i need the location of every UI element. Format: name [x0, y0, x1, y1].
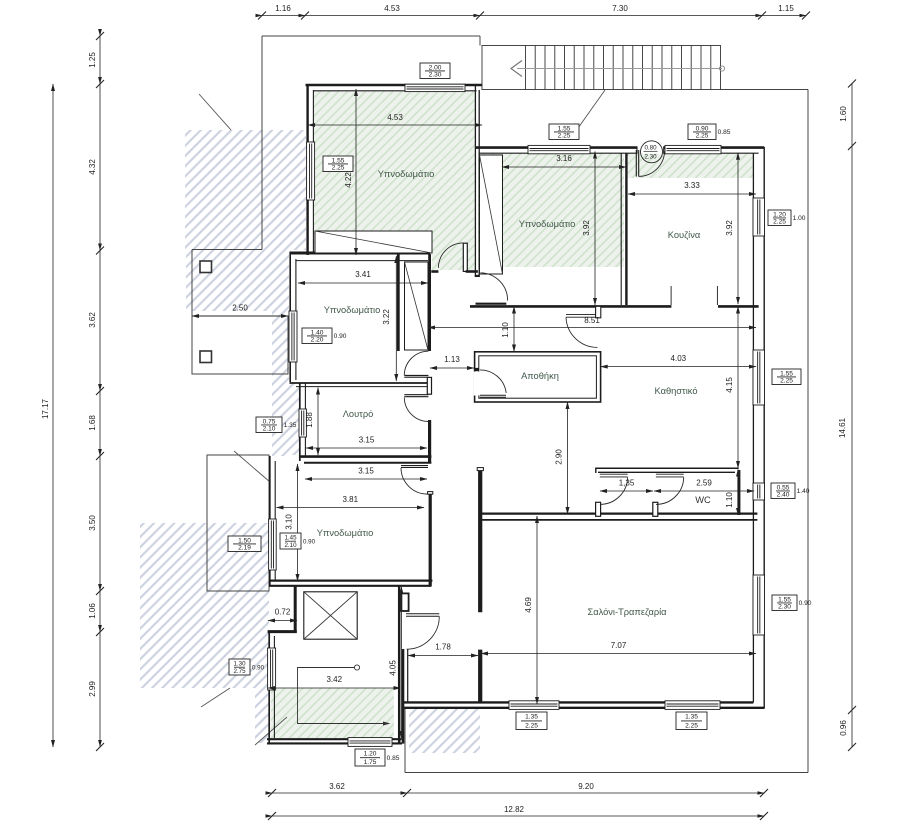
svg-text:2.20: 2.20 — [311, 337, 324, 344]
svg-text:3.81: 3.81 — [342, 495, 358, 504]
svg-text:0.80: 0.80 — [644, 145, 657, 152]
svg-text:1.35: 1.35 — [525, 714, 538, 721]
svg-text:0.96: 0.96 — [839, 720, 848, 736]
svg-text:1.78: 1.78 — [435, 643, 451, 652]
svg-text:2.25: 2.25 — [558, 133, 571, 140]
svg-text:Κουζίνα: Κουζίνα — [668, 230, 701, 240]
svg-text:4.32: 4.32 — [88, 159, 97, 175]
svg-text:2.25: 2.25 — [773, 219, 786, 226]
svg-text:4.05: 4.05 — [389, 660, 398, 676]
svg-text:4.69: 4.69 — [524, 597, 533, 613]
svg-text:1.13: 1.13 — [444, 355, 460, 364]
svg-text:2.90: 2.90 — [555, 449, 564, 465]
svg-text:9.20: 9.20 — [578, 782, 594, 791]
svg-text:4.15: 4.15 — [725, 377, 734, 393]
svg-text:17.17: 17.17 — [41, 398, 50, 419]
svg-text:Υπνοδωμάτιο: Υπνοδωμάτιο — [317, 528, 374, 538]
svg-text:0.90: 0.90 — [303, 538, 316, 545]
svg-text:3.62: 3.62 — [88, 312, 97, 328]
svg-text:Σαλόνι-Τραπεζαρία: Σαλόνι-Τραπεζαρία — [587, 607, 667, 617]
svg-text:Αποθήκη: Αποθήκη — [521, 371, 559, 381]
svg-text:3.42: 3.42 — [326, 675, 342, 684]
svg-text:7.07: 7.07 — [611, 641, 627, 650]
svg-text:3.33: 3.33 — [684, 181, 700, 190]
svg-text:1.60: 1.60 — [839, 106, 848, 122]
svg-text:14.61: 14.61 — [838, 417, 847, 438]
svg-text:1.75: 1.75 — [364, 759, 377, 766]
svg-text:1.88: 1.88 — [305, 412, 314, 428]
svg-text:1.15: 1.15 — [778, 4, 794, 13]
svg-text:1.40: 1.40 — [797, 488, 810, 495]
svg-text:7.30: 7.30 — [612, 4, 628, 13]
svg-text:0.72: 0.72 — [275, 608, 291, 617]
svg-text:1.06: 1.06 — [88, 603, 97, 619]
svg-text:2.30: 2.30 — [429, 72, 442, 79]
svg-text:0.90: 0.90 — [252, 664, 265, 671]
svg-text:2.25: 2.25 — [780, 378, 793, 385]
svg-text:12.82: 12.82 — [504, 805, 525, 814]
svg-text:3.22: 3.22 — [382, 309, 391, 325]
svg-text:2.59: 2.59 — [696, 479, 712, 488]
svg-text:0.90: 0.90 — [334, 333, 347, 340]
svg-text:Υπνοδωμάτιο: Υπνοδωμάτιο — [324, 305, 381, 315]
svg-text:2.75: 2.75 — [233, 668, 246, 675]
svg-text:2.25: 2.25 — [525, 723, 538, 730]
svg-text:Υπνοδωμάτιο: Υπνοδωμάτιο — [378, 169, 435, 179]
svg-text:1.10: 1.10 — [501, 322, 510, 338]
svg-text:1.10: 1.10 — [725, 492, 734, 508]
svg-text:1.00: 1.00 — [793, 215, 806, 222]
svg-text:2.40: 2.40 — [777, 492, 790, 499]
svg-text:Λουτρό: Λουτρό — [343, 409, 374, 419]
svg-text:2.10: 2.10 — [284, 542, 297, 549]
svg-text:2.50: 2.50 — [232, 304, 248, 313]
svg-text:1.68: 1.68 — [88, 415, 97, 431]
svg-text:2.99: 2.99 — [88, 681, 97, 697]
svg-text:2.30: 2.30 — [778, 604, 791, 611]
svg-text:3.15: 3.15 — [359, 436, 375, 445]
svg-text:1.25: 1.25 — [88, 52, 97, 68]
svg-text:1.30: 1.30 — [233, 661, 246, 668]
svg-text:3.92: 3.92 — [582, 220, 591, 236]
svg-text:0.85: 0.85 — [387, 755, 400, 762]
svg-text:2.19: 2.19 — [238, 545, 251, 552]
svg-text:Καθηστικό: Καθηστικό — [655, 386, 698, 396]
svg-text:1.16: 1.16 — [275, 4, 291, 13]
svg-text:3.10: 3.10 — [285, 514, 294, 530]
svg-text:0.85: 0.85 — [718, 129, 731, 136]
svg-text:1.35: 1.35 — [685, 714, 698, 721]
svg-text:WC: WC — [695, 495, 711, 505]
svg-text:3.15: 3.15 — [358, 467, 374, 476]
svg-text:2.10: 2.10 — [263, 426, 276, 433]
svg-text:8.51: 8.51 — [584, 316, 600, 325]
svg-text:1.20: 1.20 — [364, 751, 377, 758]
svg-text:3.16: 3.16 — [556, 154, 572, 163]
svg-text:4.22: 4.22 — [344, 172, 353, 188]
svg-text:3.62: 3.62 — [329, 782, 345, 791]
svg-text:3.92: 3.92 — [725, 220, 734, 236]
svg-text:0.90: 0.90 — [799, 600, 812, 607]
svg-text:1,35: 1,35 — [619, 479, 635, 488]
svg-text:2.25: 2.25 — [696, 133, 709, 140]
svg-text:Υπνοδωμάτιο: Υπνοδωμάτιο — [519, 219, 576, 229]
svg-text:3.41: 3.41 — [355, 270, 371, 279]
svg-text:4.03: 4.03 — [671, 354, 687, 363]
svg-text:3.50: 3.50 — [88, 515, 97, 531]
svg-text:2.25: 2.25 — [332, 165, 345, 172]
svg-text:2.30: 2.30 — [644, 154, 657, 161]
svg-text:4.53: 4.53 — [384, 4, 400, 13]
svg-text:2.25: 2.25 — [685, 723, 698, 730]
svg-text:1.45: 1.45 — [284, 535, 297, 542]
svg-text:4.53: 4.53 — [387, 113, 403, 122]
svg-text:1.35: 1.35 — [284, 422, 297, 429]
